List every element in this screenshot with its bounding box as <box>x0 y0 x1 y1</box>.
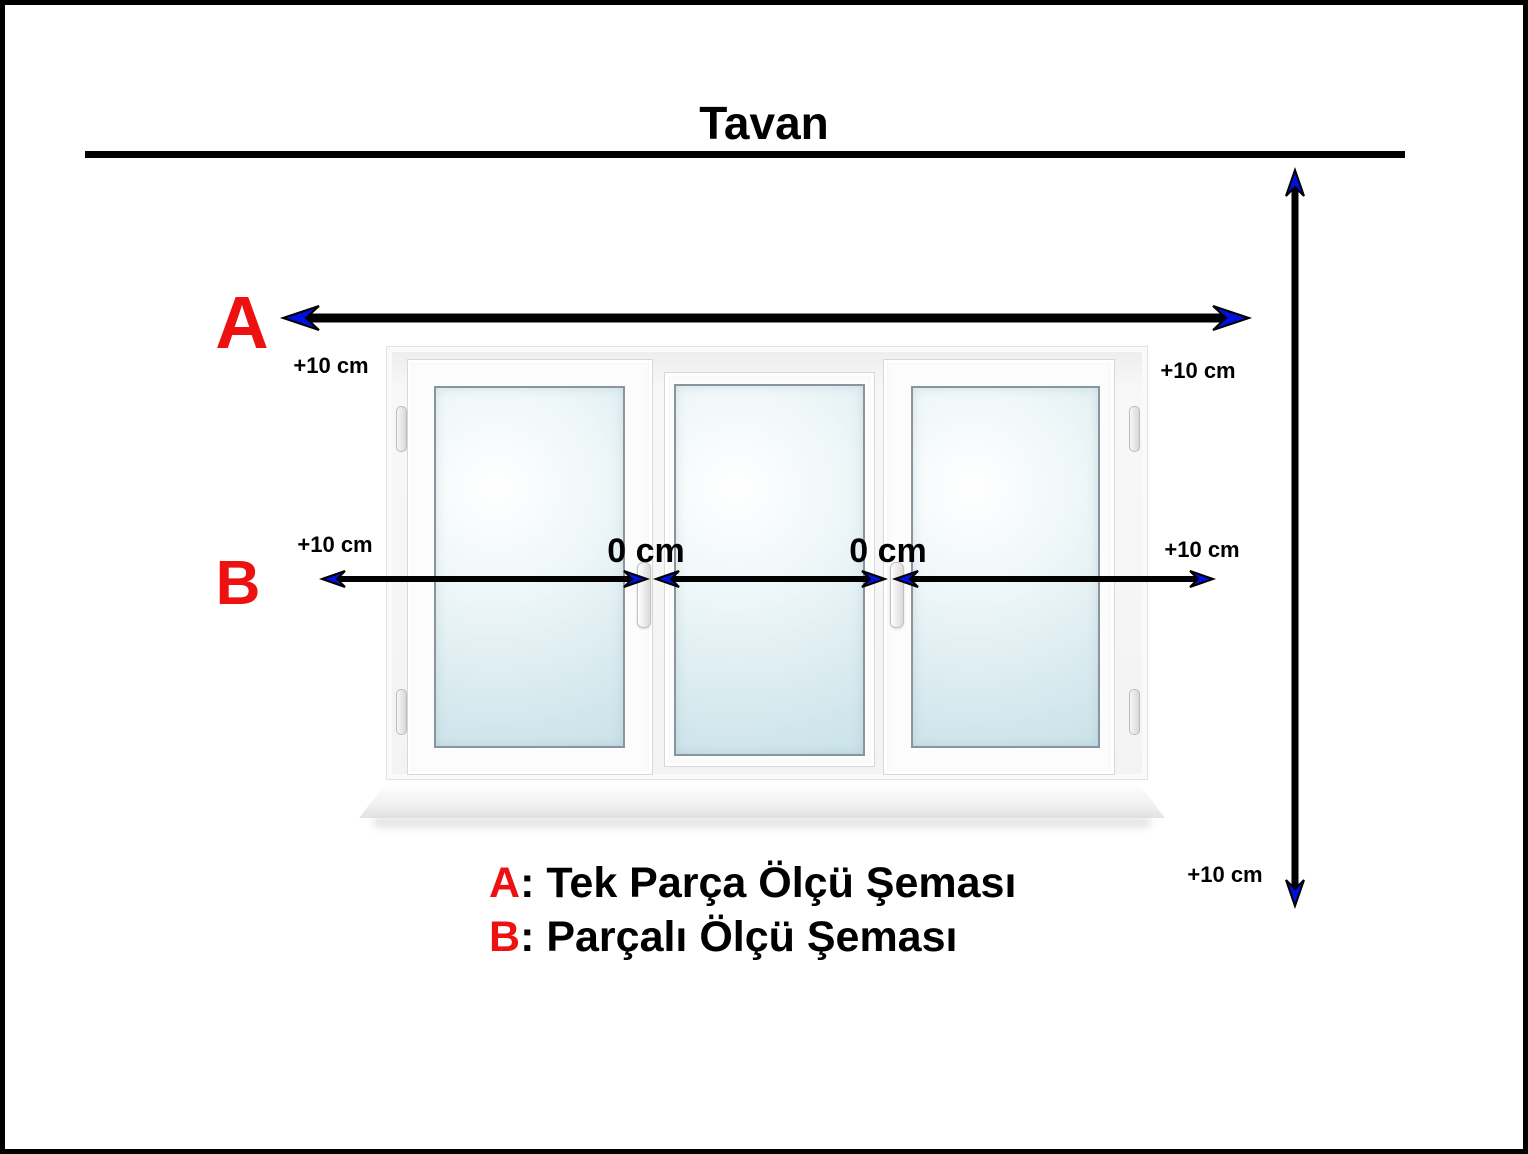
glass-pane-middle <box>674 384 865 756</box>
measure-label-b-right: +10 cm <box>1164 539 1239 561</box>
measure-label-a-right: +10 cm <box>1160 360 1235 382</box>
arrowhead-up-icon <box>1286 170 1304 196</box>
legend-text-a: : Tek Parça Ölçü Şeması <box>520 859 1016 907</box>
measure-label-height-bottom: +10 cm <box>1187 864 1262 886</box>
ceiling-line <box>85 151 1405 158</box>
arrowhead-down-icon <box>1286 880 1304 906</box>
hinge-icon-top-right <box>1129 406 1140 452</box>
legend-line-a: A: Tek Parça Ölçü Şeması <box>489 862 1016 905</box>
hinge-icon-top-left <box>396 406 407 452</box>
glass-pane-left <box>434 386 625 748</box>
measure-label-a-left: +10 cm <box>293 355 368 377</box>
legend-line-b: B: Parçalı Ölçü Şeması <box>489 916 957 959</box>
window-sash-middle <box>664 372 875 767</box>
measure-label-b-left: +10 cm <box>297 534 372 556</box>
hinge-icon-bottom-left <box>396 689 407 735</box>
window-sill <box>359 784 1165 818</box>
legend-key-b: B <box>489 913 520 961</box>
height-arrow <box>1286 170 1304 906</box>
window-handle-left <box>637 562 651 628</box>
marker-a: A <box>215 286 268 360</box>
marker-b: B <box>216 553 261 615</box>
gap-label-2: 0 cm <box>849 534 927 568</box>
arrowhead-left-icon <box>322 571 345 587</box>
window-illustration <box>386 346 1148 780</box>
legend-text-b: : Parçalı Ölçü Şeması <box>520 913 957 961</box>
glass-pane-right <box>911 386 1100 748</box>
width-arrow-a <box>283 306 1249 330</box>
window-handle-right <box>890 562 904 628</box>
arrowhead-left-icon <box>283 306 319 330</box>
legend-key-a: A <box>489 859 520 907</box>
hinge-icon-bottom-right <box>1129 689 1140 735</box>
page-title: Tavan <box>0 100 1528 146</box>
window-sill-shadow <box>374 818 1150 827</box>
gap-label-1: 0 cm <box>607 534 685 568</box>
arrowhead-right-icon <box>1213 306 1249 330</box>
arrowhead-right-icon <box>1190 571 1213 587</box>
